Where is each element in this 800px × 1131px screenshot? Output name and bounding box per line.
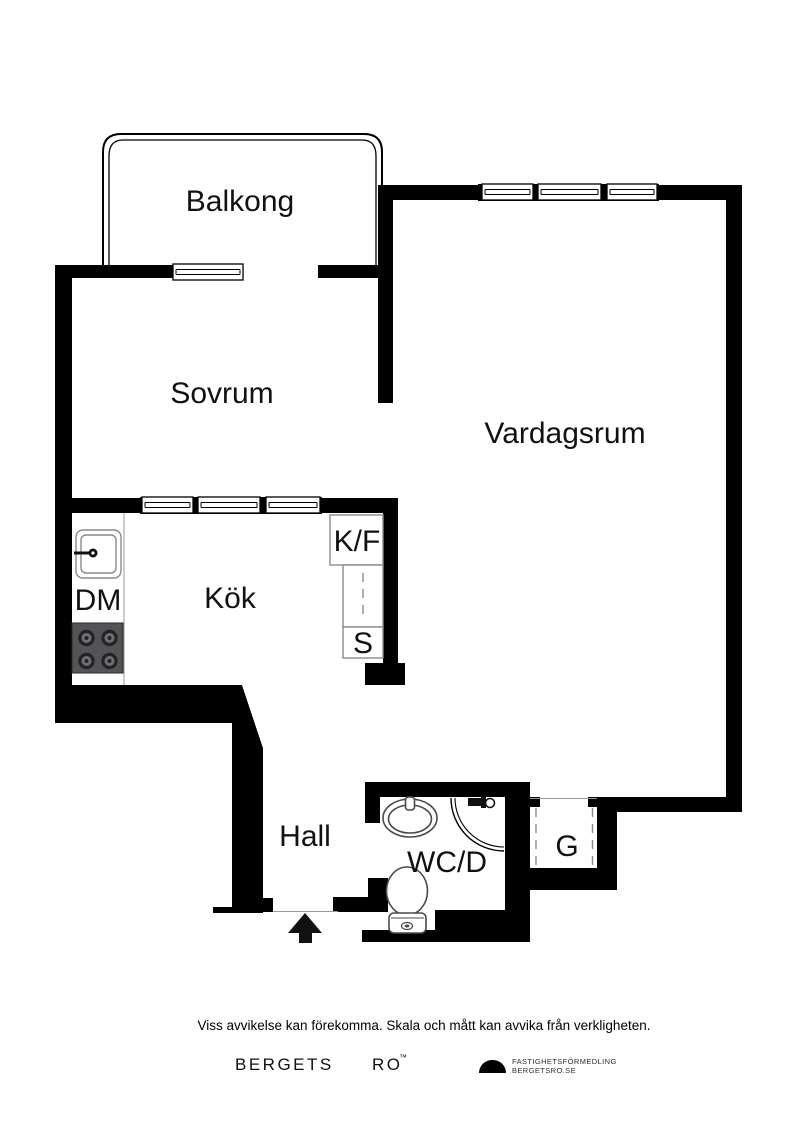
room-label-wcd: WC/D [407,846,487,879]
window [198,497,260,513]
label-fridge-freezer: K/F [334,525,381,558]
floor-plan: Balkong Sovrum Vardagsrum Kök DM K/F S H… [0,0,800,1131]
burner [101,653,117,669]
hall-west-wall [55,685,273,912]
washbasin [383,797,437,837]
window [607,184,657,200]
logo-caption-line2: BERGETSRO.SE [512,1067,617,1076]
window [142,497,193,513]
entry-arrow-icon [288,913,322,943]
logo-caption: FASTIGHETSFÖRMEDLING BERGETSRO.SE [512,1058,617,1075]
kitchen-cabinet-dashed [343,565,383,627]
label-dishwasher: DM [75,584,122,617]
kitchen-windows [142,497,320,513]
burner [78,630,94,646]
floor-plan-page: Balkong Sovrum Vardagsrum Kök DM K/F S H… [0,0,800,1131]
shower [451,796,504,851]
shower-mixer-icon [468,796,495,808]
stove [72,623,123,673]
brand-word-ro: RO [372,1055,403,1075]
room-label-vardagsrum: Vardagsrum [484,417,645,450]
living-room-windows [482,184,657,200]
burner [101,630,117,646]
room-label-kok: Kök [204,582,257,615]
window [266,497,320,513]
burner [78,653,94,669]
window [538,184,601,200]
label-pantry: S [353,627,373,660]
trademark-mark: ™ [399,1053,407,1062]
kitchen-sink [74,530,121,578]
disclaimer-text: Viss avvikelse kan förekomma. Skala och … [24,1018,800,1033]
room-label-sovrum: Sovrum [170,377,273,410]
room-label-balkong: Balkong [186,185,294,218]
label-garderob: G [555,830,578,863]
window [482,184,533,200]
brand-word-bergets: BERGETS [235,1055,334,1075]
bedroom-window [173,264,243,280]
room-label-hall: Hall [279,820,331,853]
window [173,264,243,280]
